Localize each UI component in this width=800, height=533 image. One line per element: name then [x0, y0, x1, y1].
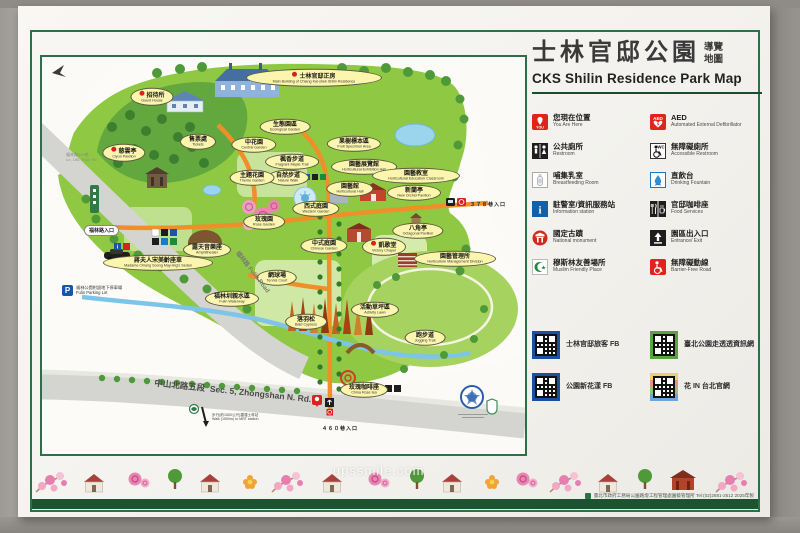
- legend-information: i 駐警室/資訊服務站Information station: [532, 201, 650, 217]
- national-monument-icon: [292, 72, 297, 77]
- lane-190-label: 福林路190巷 Ln. 190, Fulin Rd.: [66, 153, 98, 163]
- vertical-street-sign: [90, 185, 99, 213]
- title-block: 士林官邸公園 導覽 地圖: [532, 40, 762, 66]
- legend-national-monument: 國定古蹟National monument: [532, 230, 650, 246]
- national-monument-icon: [371, 241, 376, 246]
- entrance-378-label: ３７８巷入口: [470, 201, 506, 208]
- barrier-free-icon: [650, 259, 666, 275]
- agency-credit-text: 臺北市政府工務局公園路燈工程管理處園藝管理所 Tel:(02)2881-2512…: [594, 493, 754, 499]
- you-are-here-icon: YOU: [532, 114, 548, 130]
- legend-aed: AED AEDAutomated External Defibrillator: [650, 114, 762, 130]
- breastfeeding-icon: [532, 172, 548, 188]
- drinking-fountain-icon: [650, 172, 666, 188]
- legend-drinking-fountain: 直飲台Drinking Fountain: [650, 172, 762, 188]
- legend: YOU 您現在位置You Are Here 公共廁所Restroom 哺集乳室B…: [532, 114, 762, 275]
- aed-icon: AED: [650, 114, 666, 130]
- national-monument-icon: [111, 147, 116, 152]
- parking-info: P 福林公園附設地下停車場 Fulin Parking Lot: [62, 285, 132, 296]
- legend-accessible-restroom: WC 無障礙廁所Accessible Restroom: [650, 143, 762, 159]
- legend-food-services: 官邸咖啡座Food Services: [650, 201, 762, 217]
- svg-text:AED: AED: [653, 116, 663, 121]
- info-panel: 士林官邸公園 導覽 地圖 CKS Shilin Residence Park M…: [532, 40, 762, 401]
- svg-text:i: i: [538, 205, 541, 217]
- legend-barrier-free: 無障礙動線Barrier-Free Road: [650, 259, 762, 275]
- legend-restroom: 公共廁所Restroom: [532, 143, 650, 159]
- mrt-walk-note: 步行(約1500公尺)捷運士林站 Walk (1500m) to MRT sta…: [212, 413, 258, 422]
- title-divider: [532, 92, 762, 94]
- parking-text: 福林公園附設地下停車場 Fulin Parking Lot: [76, 285, 122, 296]
- qr-taipei-parks: 臺北公園走透透資訊網: [650, 331, 762, 359]
- svg-text:YOU: YOU: [536, 126, 544, 130]
- qr-code: [650, 331, 678, 359]
- information-icon: i: [532, 201, 548, 217]
- national-monument-icon: [532, 230, 548, 246]
- park-title-small: 導覽 地圖: [704, 42, 723, 66]
- park-map-panel: i: [40, 55, 527, 456]
- qr-section: 士林官邸旅客 FB 臺北公園走透透資訊網 公園新花漾 FB 花 IN 台北官網: [532, 331, 762, 401]
- qr-code: [532, 373, 560, 401]
- qr-code: [532, 331, 560, 359]
- park-title-zh: 士林官邸公園: [532, 40, 700, 66]
- qr-park-flower-fb: 公園新花漾 FB: [532, 373, 650, 401]
- fulin-road-entrance-label: 福林路入口: [84, 225, 119, 236]
- accessible-restroom-icon: WC: [650, 143, 666, 159]
- parking-icon: P: [62, 285, 73, 296]
- entrance-460-label: ４６０巷入口: [322, 425, 358, 432]
- muslim-friendly-icon: [532, 259, 548, 275]
- legend-breastfeeding: 哺集乳室Breastfeeding Room: [532, 172, 650, 188]
- national-monument-icon: [139, 91, 144, 96]
- photo-watermark: upssmile.com: [333, 463, 424, 478]
- qr-shilin-fb: 士林官邸旅客 FB: [532, 331, 650, 359]
- restroom-icon: [532, 143, 548, 159]
- legend-muslim-friendly: 穆斯林友善場所Muslim Friendly Place: [532, 259, 650, 275]
- legend-entrance-exit: 園區出入口Entrance/ Exit: [650, 230, 762, 246]
- park-title-en: CKS Shilin Residence Park Map: [532, 71, 762, 86]
- qr-flower-in-taipei: 花 IN 台北官網: [650, 373, 762, 401]
- photo-of-park-sign: { "header": { "title_zh": "士林官邸公園", "tit…: [0, 0, 800, 533]
- food-services-icon: [650, 201, 666, 217]
- entrance-exit-icon: [650, 230, 666, 246]
- sign-bottom-band: [32, 499, 758, 509]
- qr-code: [650, 373, 678, 401]
- legend-you-are-here: YOU 您現在位置You Are Here: [532, 114, 650, 130]
- footer: 臺北市政府工務局公園路燈工程管理處園藝管理所 Tel:(02)2881-2512…: [585, 493, 754, 499]
- svg-text:WC: WC: [658, 145, 665, 150]
- parks-dept-logo-icon: [585, 493, 591, 499]
- park-sign-board: i: [18, 6, 770, 517]
